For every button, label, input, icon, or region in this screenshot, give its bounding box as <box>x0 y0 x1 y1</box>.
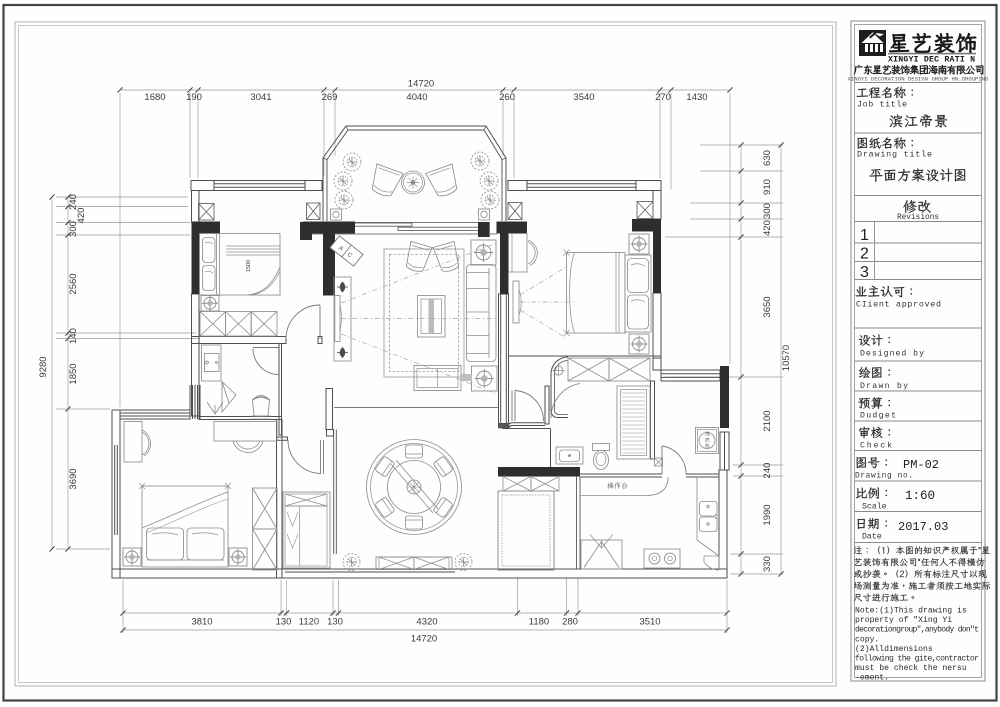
svg-text:1180: 1180 <box>529 617 549 628</box>
svg-text:269: 269 <box>322 92 338 103</box>
svg-text:Drawing title: Drawing title <box>857 150 932 160</box>
svg-text:14720: 14720 <box>408 79 434 90</box>
svg-text:14720: 14720 <box>411 634 437 645</box>
svg-text:140: 140 <box>68 328 79 344</box>
svg-text:Date: Date <box>862 533 882 542</box>
svg-text:3510: 3510 <box>639 617 660 628</box>
svg-text:Scale: Scale <box>862 502 887 512</box>
svg-text:-ement.: -ement. <box>855 674 889 683</box>
svg-text:420: 420 <box>76 208 87 224</box>
svg-text:4040: 4040 <box>406 92 427 103</box>
svg-text:XINGYI DECORATION DESIGN GROUP: XINGYI DECORATION DESIGN GROUP HN.GROUPI… <box>848 75 990 82</box>
svg-text:130: 130 <box>327 617 343 628</box>
svg-text:3690: 3690 <box>68 468 79 489</box>
svg-text:2017.03: 2017.03 <box>898 520 948 534</box>
svg-text:XINGYI DEC RATI N: XINGYI DEC RATI N <box>888 56 975 65</box>
svg-text:decorationgroup",anybody don"t: decorationgroup",anybody don"t <box>855 626 979 635</box>
svg-text:420: 420 <box>762 220 773 236</box>
svg-text:must be check the nersu: must be check the nersu <box>855 664 967 673</box>
svg-text:1: 1 <box>860 227 869 244</box>
svg-text:following the gite,contractor: following the gite,contractor <box>855 655 979 664</box>
svg-text:260: 260 <box>499 92 515 103</box>
svg-text:copy.: copy. <box>855 635 879 644</box>
svg-text:2560: 2560 <box>68 273 79 294</box>
svg-text:1500: 1500 <box>246 260 252 272</box>
svg-text:2100: 2100 <box>762 410 773 431</box>
svg-text:910: 910 <box>762 179 773 195</box>
svg-text:190: 190 <box>186 92 202 103</box>
svg-text:(2)Alldimensions: (2)Alldimensions <box>855 645 933 654</box>
svg-text:2: 2 <box>860 246 869 263</box>
svg-text:330: 330 <box>762 556 773 572</box>
svg-text:1680: 1680 <box>144 92 165 103</box>
svg-text:PM-02: PM-02 <box>903 458 939 472</box>
svg-text:Check: Check <box>860 441 892 451</box>
svg-text:3650: 3650 <box>762 296 773 317</box>
svg-text:property of "Xing Yi: property of "Xing Yi <box>855 616 952 625</box>
svg-text:3810: 3810 <box>191 617 212 628</box>
svg-text:Revisions: Revisions <box>897 214 939 222</box>
svg-text:630: 630 <box>762 150 773 166</box>
svg-text:130: 130 <box>276 617 292 628</box>
svg-text:3041: 3041 <box>250 92 271 103</box>
svg-text:1990: 1990 <box>762 504 773 525</box>
svg-text:300: 300 <box>68 221 79 237</box>
svg-text:1120: 1120 <box>299 617 319 628</box>
svg-text:Designed by: Designed by <box>860 349 924 359</box>
svg-text:4320: 4320 <box>416 617 437 628</box>
svg-text:3: 3 <box>860 264 869 281</box>
svg-text:240: 240 <box>68 194 79 210</box>
svg-text:Note:(1)This drawing is: Note:(1)This drawing is <box>855 607 967 616</box>
svg-text:270: 270 <box>655 92 671 103</box>
svg-text:1430: 1430 <box>686 92 707 103</box>
svg-text:Dudget: Dudget <box>860 411 896 421</box>
svg-text:CIient approved: CIient approved <box>856 300 941 310</box>
svg-text:1850: 1850 <box>68 363 79 384</box>
svg-text:Drawn by: Drawn by <box>860 381 908 391</box>
svg-text:10570: 10570 <box>781 345 792 371</box>
svg-text:9280: 9280 <box>38 356 49 377</box>
svg-text:1:60: 1:60 <box>905 489 935 503</box>
svg-text:3540: 3540 <box>573 92 594 103</box>
svg-text:300: 300 <box>762 203 773 219</box>
svg-text:280: 280 <box>562 617 578 628</box>
svg-text:240: 240 <box>762 463 773 479</box>
svg-text:Job title: Job title <box>857 100 907 110</box>
svg-text:Drawing no.: Drawing no. <box>855 473 913 481</box>
